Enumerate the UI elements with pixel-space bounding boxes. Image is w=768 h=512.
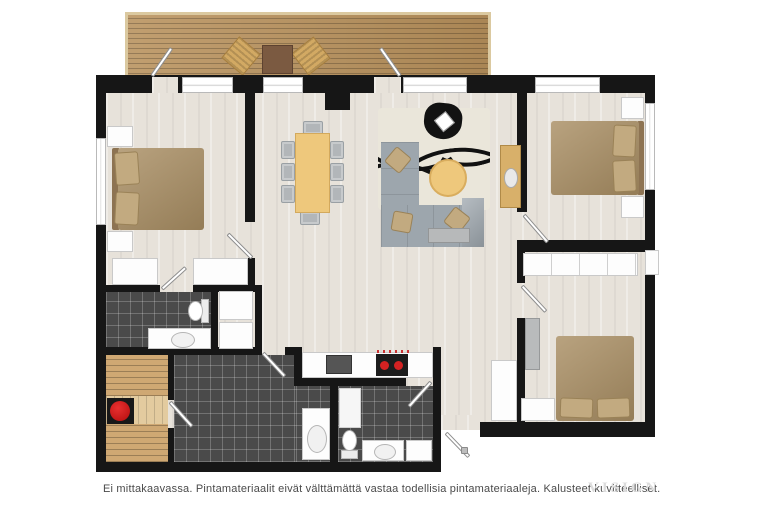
wall-kitchen-back	[296, 378, 406, 386]
pillow	[597, 397, 631, 418]
kitchen-counter	[302, 352, 433, 378]
dining-chair	[330, 163, 344, 181]
disclaimer-caption: Ei mittakaavassa. Pintamateriaalit eivät…	[103, 483, 660, 495]
dining-chair	[300, 211, 320, 225]
wardrobe-gray	[525, 318, 540, 370]
dining-chair	[281, 185, 295, 203]
wall-shower-bath2	[330, 386, 338, 462]
dresser	[521, 398, 555, 421]
wall-bedroom1-south	[106, 285, 160, 292]
nightstand	[621, 97, 644, 119]
bathroom-cabinet	[406, 440, 432, 461]
closet-row	[523, 253, 638, 276]
wall-left	[96, 75, 106, 472]
sauna-bench-bottom	[106, 424, 168, 462]
cooktop	[376, 354, 408, 376]
pillow	[612, 124, 637, 157]
window-sill-right	[645, 250, 659, 275]
kitchen-sink	[326, 355, 352, 374]
wall-bedroom1-east	[245, 93, 255, 222]
dining-chair	[330, 141, 344, 159]
wall-ensuite-nook	[211, 292, 218, 350]
dining-chair	[281, 141, 295, 159]
wall-bath2-east	[433, 347, 441, 462]
toilet-icon	[339, 430, 360, 460]
deck-door-opening	[374, 77, 401, 93]
window-bedroom2-right	[645, 103, 655, 190]
shower-cabinet	[339, 388, 361, 428]
floor-plan-image: Ei mittakaavassa. Pintamateriaalit eivät…	[0, 0, 768, 512]
cooktop-knobs	[377, 350, 409, 353]
visign-watermark: VISIGN	[588, 480, 659, 497]
sofa-pillow	[390, 210, 413, 233]
coffee-table	[429, 159, 467, 197]
utility-cabinet	[219, 291, 253, 320]
nightstand	[621, 196, 644, 218]
sink-vanity-shower-room	[302, 408, 330, 460]
entry-door-handle	[461, 447, 468, 454]
dining-table	[295, 133, 330, 213]
wall-nook-east	[255, 285, 262, 347]
deck-table-icon	[262, 45, 293, 74]
dining-chair	[281, 163, 295, 181]
toilet-icon	[188, 297, 209, 325]
wall-sauna-shower	[168, 355, 174, 400]
pillow	[560, 397, 594, 418]
entry-opening	[441, 415, 480, 430]
chimney-block	[325, 93, 350, 110]
sink-vanity	[362, 440, 404, 461]
sink-vanity	[148, 328, 211, 349]
wall-bedroom2-south	[517, 240, 655, 252]
window-dining-top	[263, 77, 303, 93]
pillow	[114, 151, 140, 186]
nightstand	[107, 231, 133, 252]
sauna-bench-top	[106, 355, 168, 396]
window-bedroom1-left	[96, 138, 106, 225]
pillow	[114, 191, 140, 225]
wall-bath-block-north	[285, 347, 302, 355]
wall-bottom-right	[480, 422, 655, 437]
wall-sauna-shower	[168, 428, 174, 462]
wardrobe	[193, 258, 248, 285]
deck-door-opening	[152, 77, 178, 93]
hall-cabinet	[428, 228, 470, 243]
wardrobe	[112, 258, 158, 285]
window-bedroom1-top	[182, 77, 233, 93]
utility-cabinet	[219, 322, 253, 349]
window-bedroom2-top	[535, 77, 600, 93]
outside-area	[480, 437, 680, 480]
wall-bottom-left	[96, 462, 441, 472]
sauna-heater-icon	[110, 401, 130, 421]
hallway-closet	[491, 360, 517, 421]
pillow	[612, 159, 637, 192]
nightstand	[107, 126, 133, 147]
tv-sideboard	[500, 145, 521, 208]
dining-chair	[330, 185, 344, 203]
window-living-top	[403, 77, 467, 93]
